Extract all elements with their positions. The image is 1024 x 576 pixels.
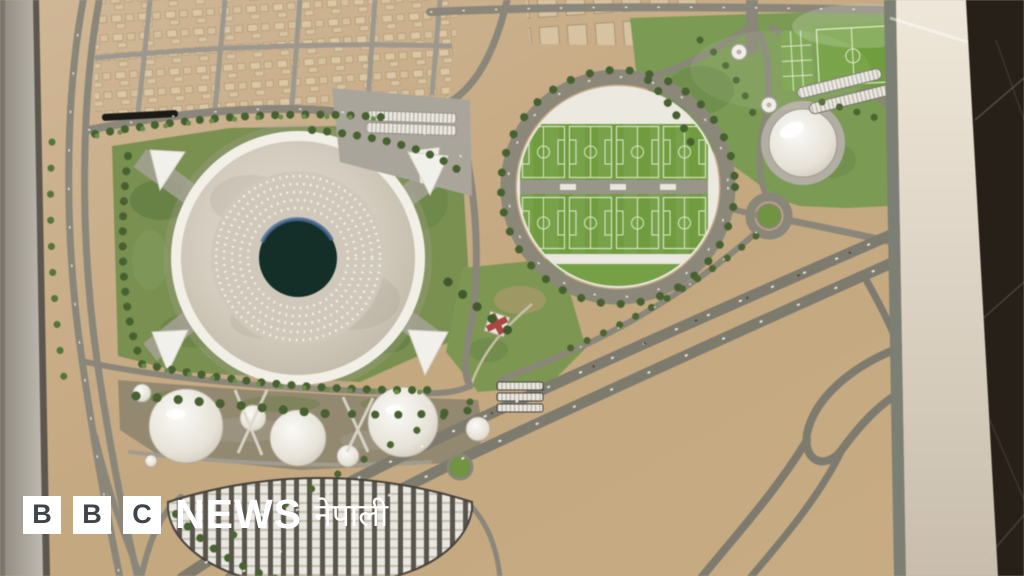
mini-arena	[761, 101, 845, 185]
bbc-block-1: B	[23, 496, 61, 534]
bbc-block-2: B	[73, 496, 111, 534]
bbc-block-3: C	[123, 496, 161, 534]
model-photo	[0, 0, 1024, 576]
bbc-news-wordmark: NEWS	[175, 491, 302, 538]
news-article-image: B B C NEWS नेपाली	[0, 0, 1024, 576]
bbc-news-logo: B B C NEWS नेपाली	[23, 491, 388, 538]
parking-shades	[497, 382, 543, 412]
bbc-service-name: नेपाली	[314, 493, 388, 536]
training-hub	[500, 77, 736, 297]
